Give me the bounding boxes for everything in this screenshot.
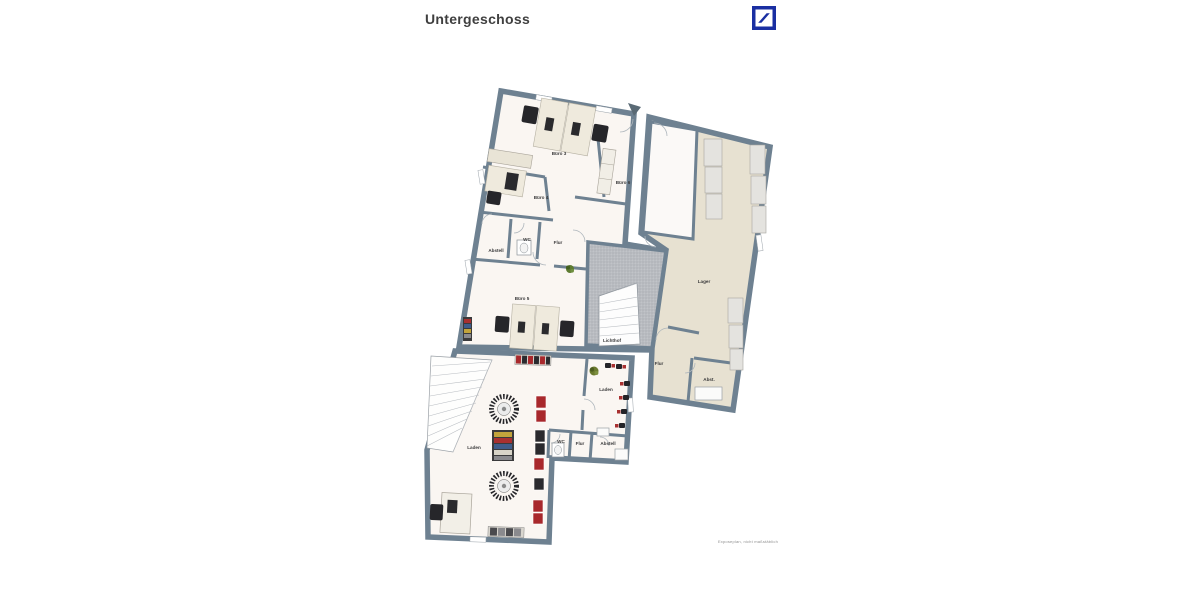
room-label-buero5: Büro 5 <box>515 296 530 301</box>
wc-lower-toilet <box>552 443 564 457</box>
room-label-wc-lower: WC <box>557 439 565 444</box>
room-label-flur-mid: Flur <box>655 361 664 366</box>
shop-color-shelf <box>492 430 514 461</box>
room-label-lichthof: Lichthof <box>603 338 622 343</box>
floorplan-page: Untergeschoss <box>0 0 1200 600</box>
shop-bottom-shelf <box>488 526 524 537</box>
room-label-abst: Abst. <box>703 377 714 382</box>
room-label-flur-lower: Flur <box>576 441 585 446</box>
room-label-abstell-lower: Abstell <box>600 441 615 446</box>
lichthof-courtyard <box>586 242 666 348</box>
room-label-flur-upper: Flur <box>554 240 563 245</box>
plant-upper-icon <box>566 265 574 273</box>
room-label-wc-upper: WC <box>523 237 531 242</box>
wc-upper-toilet <box>517 240 531 255</box>
room-label-buero3: Büro 3 <box>552 151 567 156</box>
room-label-buero4: Büro 4 <box>534 195 549 200</box>
buero5-bookshelf <box>463 317 472 341</box>
disclaimer-note: Exposeplan, nicht maßstäblich <box>690 539 778 544</box>
room-label-laden-main: Laden <box>467 445 481 450</box>
room-label-laden-right: Laden <box>599 387 613 392</box>
room-label-lager: Lager <box>698 279 711 284</box>
floor-plan: Büro 3 Büro 4 Büro 6 Abstell WC Flur Bür… <box>0 0 1200 600</box>
abst-cabinet <box>695 387 722 400</box>
storage-wing-white-room <box>643 122 697 239</box>
shop-top-rack <box>515 354 551 365</box>
room-label-abstell-upper: Abstell <box>488 248 503 253</box>
plant-laden-icon <box>590 367 599 376</box>
room-label-buero6: Büro 6 <box>616 180 631 185</box>
